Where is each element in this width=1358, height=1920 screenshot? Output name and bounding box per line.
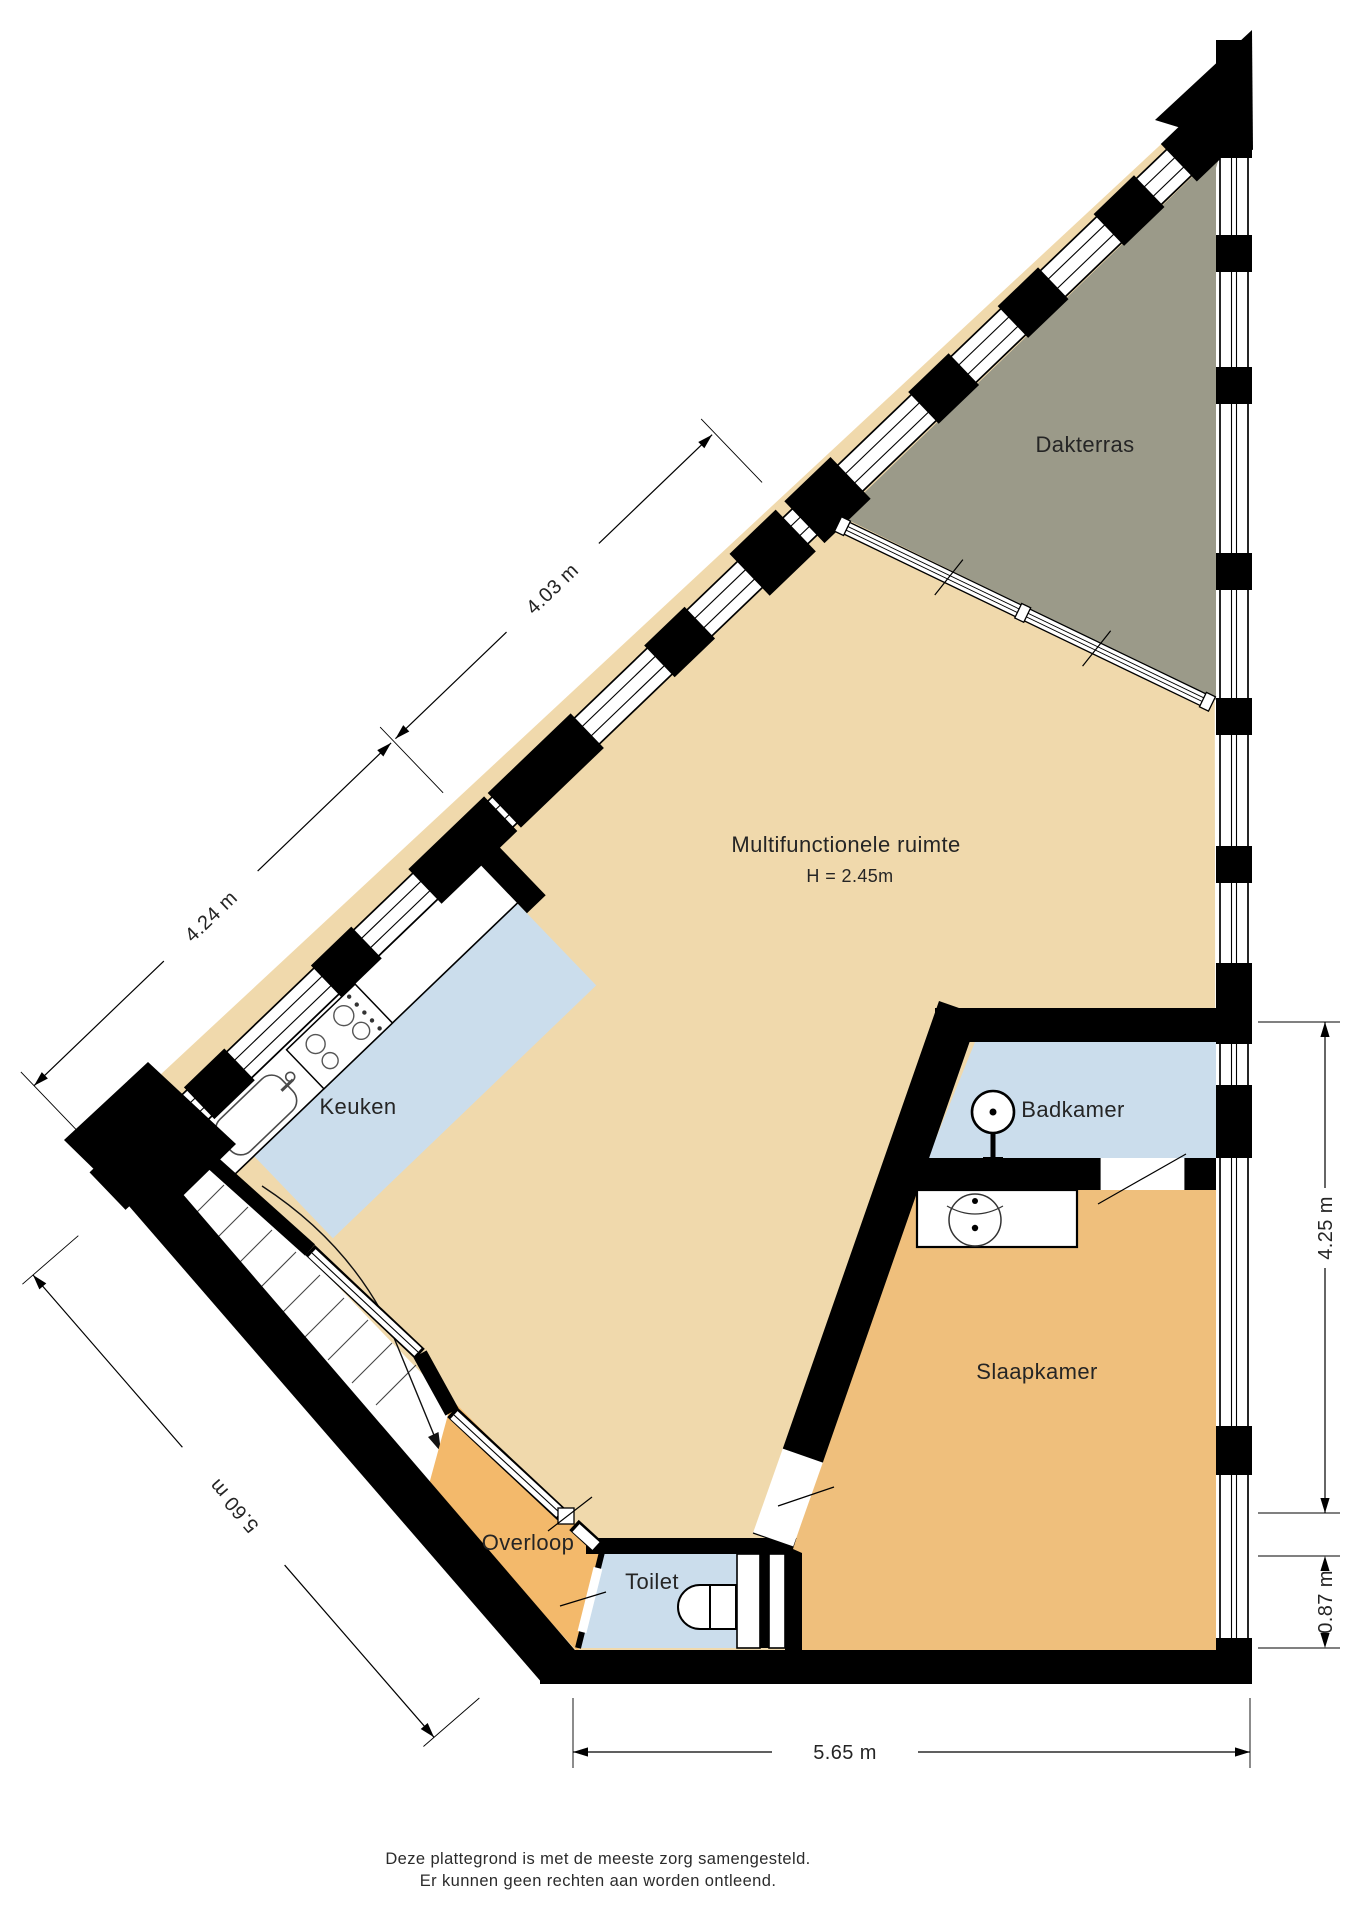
floor-plan-canvas: 4.24 m 4.03 m [0,0,1358,1920]
slaapkamer-label: Slaapkamer [976,1359,1097,1384]
badkamer-label: Badkamer [1021,1097,1124,1122]
badkamer-bottom-wall [1185,1158,1216,1190]
badkamer-door-opening [1100,1158,1185,1190]
footer-line-2: Er kunnen geen rechten aan worden ontlee… [420,1872,777,1890]
overloop-label: Overloop [482,1530,574,1555]
apex-corner-wall [1155,30,1253,150]
dimension-label: 4.25 m [1315,1196,1337,1260]
washbasin-icon [917,1190,1077,1247]
toilet-top-wall [586,1538,802,1554]
bottom-wall [540,1650,1252,1684]
shaft-divider-wall [760,1554,769,1648]
footer-note: Deze plattegrond is met de meeste zorg s… [385,1850,810,1890]
dimension-label: 0.87 m [1315,1570,1337,1634]
duct-shaft [737,1554,760,1648]
toilet-label: Toilet [625,1569,679,1594]
keuken-label: Keuken [319,1094,396,1119]
floorplan-page: 4.24 m 4.03 m [0,0,1358,1920]
toilet-right-wall [785,1538,802,1650]
dimension-label: 4.03 m [522,559,583,619]
footer-line-1: Deze plattegrond is met de meeste zorg s… [385,1850,810,1868]
ceiling-height-label: H = 2.45m [806,866,893,886]
dimension-label: 4.24 m [181,887,242,947]
dakterras-label: Dakterras [1036,432,1135,457]
dimension-right-lower: 0.87 m [1258,1556,1340,1648]
duct-shaft [769,1554,785,1648]
badkamer-top-wall [935,1008,1216,1042]
dimension-right-main: 4.25 m [1258,1022,1340,1513]
toilet-icon [678,1585,736,1629]
dimension-label: 5.65 m [813,1742,877,1764]
dimension-bottom: 5.65 m [573,1698,1250,1768]
multifunctionele-ruimte-label: Multifunctionele ruimte [731,832,960,857]
dimension-label: 5.60 m [205,1474,263,1536]
